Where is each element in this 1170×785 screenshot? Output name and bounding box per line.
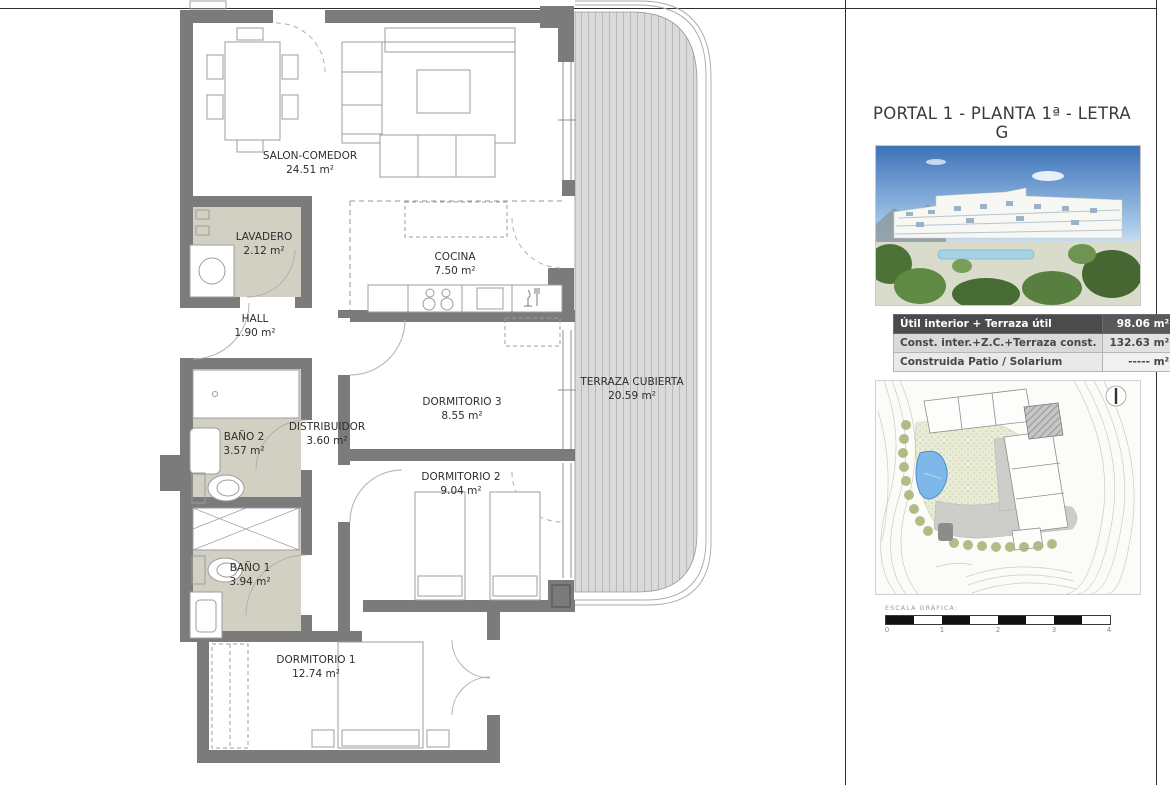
areas-row-util-value: 98.06 m² — [1103, 315, 1170, 334]
svg-text:3.57 m²: 3.57 m² — [223, 445, 264, 457]
page-title: PORTAL 1 - PLANTA 1ª - LETRA G — [870, 104, 1134, 142]
label-cocina: COCINA — [434, 251, 476, 263]
floor-plan: SALON-COMEDOR 24.51 m² LAVADERO 2.12 m² … — [0, 0, 845, 785]
site-plan — [875, 380, 1141, 595]
bed-2a — [415, 492, 465, 600]
areas-row-const-label: Const. inter.+Z.C.+Terraza const. — [894, 334, 1103, 353]
areas-row-patio-label: Construida Patio / Solarium — [894, 353, 1103, 372]
graphic-scale: ESCALA GRÁFICA: 0 1 2 3 4 — [885, 604, 1113, 635]
label-terraza: TERRAZA CUBIERTA — [579, 376, 684, 388]
dining-table — [225, 42, 280, 140]
areas-row-util-label: Útil interior + Terraza útil — [894, 315, 1103, 334]
label-bano-1: BAÑO 1 — [230, 561, 271, 574]
north-arrow-icon — [1106, 386, 1126, 406]
info-panel: PORTAL 1 - PLANTA 1ª - LETRA G — [846, 0, 1156, 785]
shed-block — [938, 523, 953, 541]
sheet-frame-right-line — [1156, 0, 1157, 785]
svg-text:20.59 m²: 20.59 m² — [608, 390, 656, 402]
label-dormitorio-1: DORMITORIO 1 — [276, 654, 355, 666]
svg-text:2.12 m²: 2.12 m² — [243, 245, 284, 257]
svg-text:7.50 m²: 7.50 m² — [434, 265, 475, 277]
svg-text:8.55 m²: 8.55 m² — [441, 410, 482, 422]
floor-plan-svg: SALON-COMEDOR 24.51 m² LAVADERO 2.12 m² … — [0, 0, 845, 785]
svg-text:9.04 m²: 9.04 m² — [440, 485, 481, 497]
svg-text:24.51 m²: 24.51 m² — [286, 164, 334, 176]
areas-row-patio-value: ----- m² — [1103, 353, 1170, 372]
building-render-photo — [875, 145, 1141, 306]
label-dormitorio-2: DORMITORIO 2 — [421, 471, 500, 483]
sofa-bottom — [380, 135, 495, 177]
label-distribuidor: DISTRIBUIDOR — [289, 421, 365, 433]
kitchen-counter — [368, 285, 562, 312]
vanity-1 — [190, 592, 222, 638]
areas-table: Útil interior + Terraza útil 98.06 m² Co… — [893, 314, 1170, 372]
areas-row-const-value: 132.63 m² — [1103, 334, 1170, 353]
areas-row-const: Const. inter.+Z.C.+Terraza const. 132.63… — [894, 334, 1170, 353]
label-salon-comedor: SALON-COMEDOR — [263, 150, 357, 162]
label-bano-2: BAÑO 2 — [224, 430, 265, 443]
label-hall: HALL — [242, 313, 269, 325]
closet-3 — [505, 318, 560, 346]
building-render-illustration — [876, 146, 1140, 305]
terrace-deck — [575, 12, 697, 592]
site-plan-illustration — [876, 381, 1140, 594]
sofa-left — [342, 42, 382, 134]
highlighted-unit-block — [1024, 403, 1063, 439]
graphic-scale-bar — [885, 615, 1111, 625]
areas-row-util: Útil interior + Terraza útil 98.06 m² — [894, 315, 1170, 334]
washing-machine — [190, 245, 234, 297]
graphic-scale-label: ESCALA GRÁFICA: — [885, 604, 1113, 612]
svg-text:12.74 m²: 12.74 m² — [292, 668, 340, 680]
svg-text:1.90 m²: 1.90 m² — [234, 327, 275, 339]
label-dormitorio-3: DORMITORIO 3 — [422, 396, 501, 408]
bed-2b — [490, 492, 540, 600]
plan-sheet: SALON-COMEDOR 24.51 m² LAVADERO 2.12 m² … — [0, 0, 1170, 785]
coffee-table — [417, 70, 470, 113]
shower-2 — [193, 370, 299, 418]
pool — [938, 250, 1034, 259]
kitchen-island — [405, 202, 507, 237]
label-lavadero: LAVADERO — [236, 231, 293, 243]
washbasin-2 — [190, 428, 220, 474]
graphic-scale-ticks: 0 1 2 3 4 — [885, 625, 1111, 635]
sideboard — [385, 28, 515, 52]
svg-text:3.94 m²: 3.94 m² — [229, 576, 270, 588]
vent-detail — [190, 1, 226, 9]
svg-text:3.60 m²: 3.60 m² — [306, 435, 347, 447]
areas-row-patio: Construida Patio / Solarium ----- m² — [894, 353, 1170, 372]
